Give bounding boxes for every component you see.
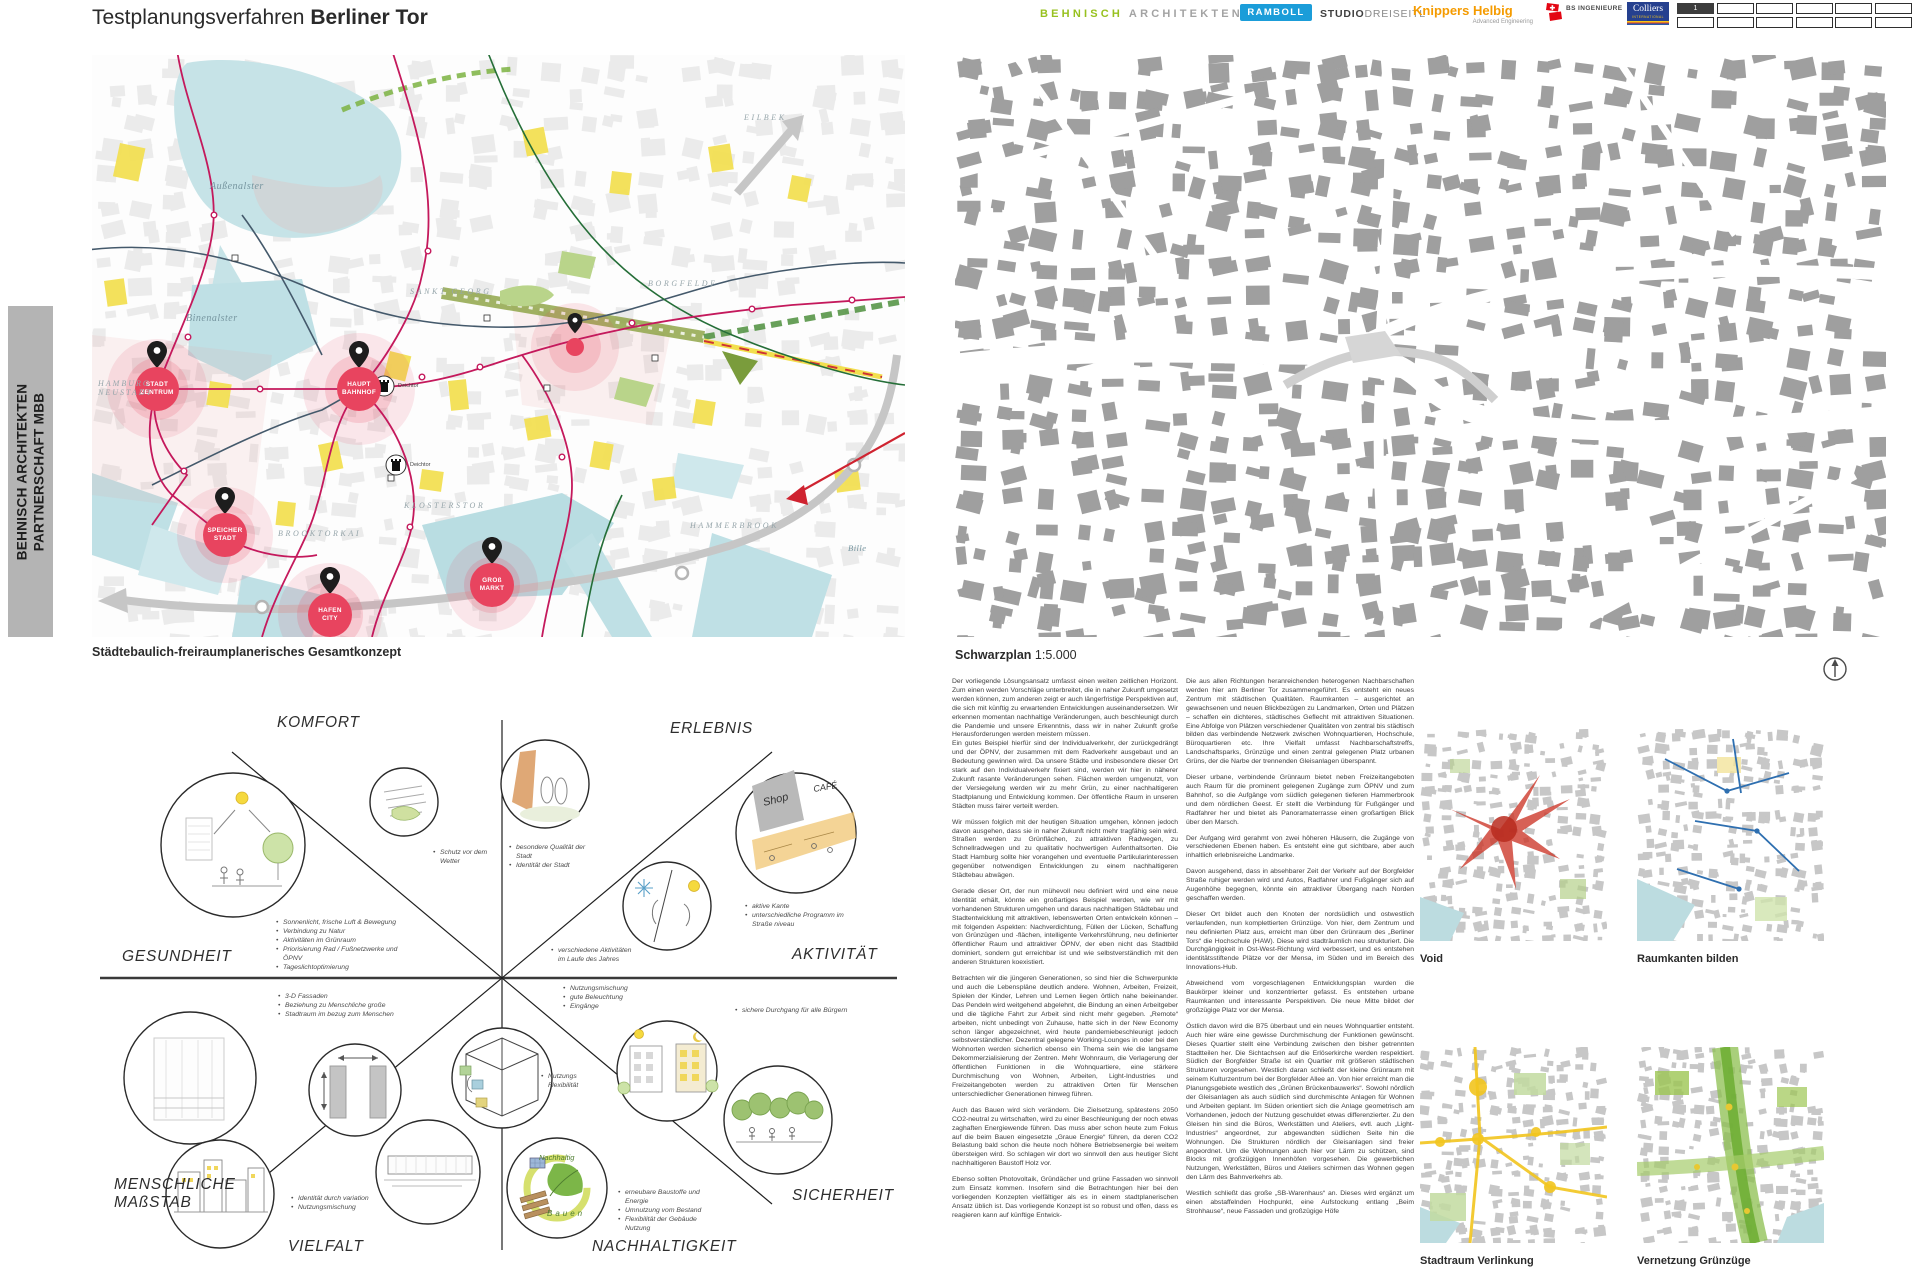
bullets-mischung: Nutzungsmischunggute BeleuchtungEingänge bbox=[562, 984, 647, 1011]
label-borgfelde: BORGFELDE bbox=[648, 279, 718, 288]
label-binnenalster: Binenalster bbox=[186, 313, 238, 324]
minimap-stadtraum: Stadtraum Verlinkung bbox=[1420, 1047, 1607, 1267]
map-pin-icon bbox=[568, 313, 583, 333]
firm-side-band: BEHNISCH ARCHITEKTEN PARTNERSCHAFT MBB bbox=[8, 306, 53, 637]
sheet-index-cell bbox=[1717, 3, 1754, 14]
label-eilbek: EILBEK bbox=[744, 113, 787, 122]
sector-label-menschliche-massstab: MENSCHLICHE MAßSTAB bbox=[114, 1176, 236, 1212]
sheet-index-grid: 1 bbox=[1677, 3, 1912, 28]
essay-paragraph: Auch das Bauen wird sich verändern. Die … bbox=[952, 1107, 1178, 1169]
sector-label-sicherheit: SICHERHEIT bbox=[792, 1187, 894, 1205]
behnisch-logo-green: BEHNISCH bbox=[1040, 8, 1123, 20]
minimap-raumkanten-caption: Raumkanten bilden bbox=[1637, 953, 1824, 965]
minimap-gruenzuege: Vernetzung Grünzüge bbox=[1637, 1047, 1824, 1267]
schwarzplan-caption-scale: 1:5.000 bbox=[1035, 648, 1077, 662]
minimap-gruenzuege-graphic bbox=[1637, 1047, 1824, 1248]
sector-label-nachhaltigkeit: NACHHALTIGKEIT bbox=[592, 1238, 736, 1256]
essay-column-1: Der vorliegende Lösungsansatz umfasst ei… bbox=[952, 678, 1178, 1279]
colliers-logo-subtext: INTERNATIONAL bbox=[1627, 15, 1669, 19]
concept-map: STADT ZENTRUM HAUPT BAHNHOF SPEICHER STA… bbox=[92, 55, 905, 637]
map-pin-icon bbox=[482, 537, 502, 564]
sheet-index-cell bbox=[1875, 17, 1912, 28]
minimap-stadtraum-graphic bbox=[1420, 1047, 1607, 1248]
essay-paragraph: Westlich schließt das große „SB-Warenhau… bbox=[1186, 1190, 1414, 1217]
north-arrow-icon bbox=[1822, 656, 1848, 687]
sheet-index-cell bbox=[1677, 17, 1714, 28]
sheet-index-cell bbox=[1835, 17, 1872, 28]
colliers-logo-stripes bbox=[1627, 21, 1669, 25]
minimap-void-graphic bbox=[1420, 729, 1607, 946]
studio-dreiseitl-logo: STUDIODREISEITL bbox=[1320, 8, 1426, 20]
bullets-wetter: Schutz vor dem Wetter bbox=[432, 848, 494, 866]
sheet-index-cell bbox=[1756, 17, 1793, 28]
knippers-logo-subtext: Advanced Engineering bbox=[1413, 19, 1533, 25]
sheet-index-cell-active: 1 bbox=[1677, 3, 1714, 14]
schwarzplan-map bbox=[955, 55, 1886, 637]
ramboll-logo-text: RAMBOLL bbox=[1247, 7, 1304, 18]
label-hamburg-neustadt: HAMBURG NEUSTADT bbox=[98, 379, 153, 397]
sketch-bauen-label: Bauen bbox=[547, 1209, 585, 1218]
presentation-board: { "header": { "title_prefix": "Testplanu… bbox=[0, 0, 1920, 1280]
essay-paragraph: Ebenso sollten Photovoltaik, Gründächer … bbox=[952, 1176, 1178, 1221]
essay-paragraph: Betrachten wir die jüngeren Generationen… bbox=[952, 975, 1178, 1100]
sector-label-aktivitaet: AKTIVITÄT bbox=[792, 946, 878, 964]
bullets-fassaden: 3-D FassadenBeziehung zu Menschliche gro… bbox=[277, 992, 402, 1019]
map-marker-label: HAFEN CITY bbox=[308, 593, 352, 637]
schwarzplan-graphic bbox=[955, 55, 1886, 637]
sheet-index-cell bbox=[1835, 3, 1872, 14]
minimap-stadtraum-caption: Stadtraum Verlinkung bbox=[1420, 1255, 1607, 1267]
label-bille: Bille bbox=[848, 543, 867, 553]
sheet-index-cell bbox=[1756, 3, 1793, 14]
essay-paragraph: Der vorliegende Lösungsansatz umfasst ei… bbox=[952, 678, 1178, 812]
label-brooktorkai: BROOKTORKAI bbox=[278, 529, 361, 538]
essay-paragraph: Der Aufgang wird gerahmt von zwei höhere… bbox=[1186, 835, 1414, 862]
sector-label-erlebnis: ERLEBNIS bbox=[670, 720, 753, 738]
studio-logo-bold: STUDIO bbox=[1320, 8, 1364, 20]
colliers-logo-text: Colliers bbox=[1627, 4, 1669, 15]
bullets-qualitaet: besondere Qualität der StadtIdentität de… bbox=[508, 843, 588, 870]
sector-label-vielfalt: VIELFALT bbox=[288, 1238, 364, 1256]
title-prefix: Testplanungsverfahren bbox=[92, 6, 304, 29]
essay-paragraph: Dieser urbane, verbindende Grünraum biet… bbox=[1186, 774, 1414, 827]
map-marker-label: SPEICHER STADT bbox=[203, 513, 247, 557]
page-title: Testplanungsverfahren Berliner Tor bbox=[92, 6, 428, 30]
essay-paragraph: Östlich davon wird die B75 überbaut und … bbox=[1186, 1023, 1414, 1183]
bullets-kante: aktive Kanteunterschiedliche Programm im… bbox=[744, 902, 844, 929]
firm-side-band-text: BEHNISCH ARCHITEKTEN PARTNERSCHAFT MBB bbox=[14, 306, 47, 637]
sheet-index-cell bbox=[1796, 3, 1833, 14]
knippers-helbig-logo: Knippers Helbig Advanced Engineering bbox=[1413, 3, 1533, 25]
sector-label-gesundheit: GESUNDHEIT bbox=[122, 948, 232, 966]
schwarzplan-caption-bold: Schwarzplan bbox=[955, 648, 1031, 662]
map-pin-icon bbox=[215, 487, 235, 514]
sector-label-komfort: KOMFORT bbox=[277, 714, 360, 732]
essay-paragraph: Wir müssen folglich mit der heutigen Sit… bbox=[952, 819, 1178, 881]
minimap-gruenzuege-caption: Vernetzung Grünzüge bbox=[1637, 1255, 1824, 1267]
bs-logo-text: BS INGENIEURE bbox=[1566, 5, 1623, 12]
essay-column-2: Die aus allen Richtungen heranreichenden… bbox=[1186, 678, 1414, 1279]
essay-paragraph: Abweichend vom vorgeschlagenen Entwicklu… bbox=[1186, 980, 1414, 1016]
label-deichtor-2: Deichtor bbox=[410, 462, 430, 468]
label-sankt-georg: SANKT GEORG bbox=[410, 287, 492, 296]
label-aussenalster: Außenalster bbox=[210, 181, 264, 192]
values-diagram: Shop CAFÉ bbox=[92, 690, 905, 1280]
ramboll-logo: RAMBOLL bbox=[1240, 4, 1312, 21]
map-pin-icon bbox=[349, 341, 369, 368]
essay-paragraph: Die aus allen Richtungen heranreichenden… bbox=[1186, 678, 1414, 767]
label-hammerbrook: HAMMERBROOK bbox=[690, 521, 779, 530]
behnisch-architekten-logo: BEHNISCH ARCHITEKTEN bbox=[1040, 8, 1243, 20]
essay-paragraph: Dieser Ort bildet auch den Knoten der no… bbox=[1186, 911, 1414, 973]
map-marker-dot bbox=[566, 338, 584, 356]
label-deichtor-1: Deichtor bbox=[398, 383, 418, 389]
map-marker-label: GROß MARKT bbox=[470, 563, 514, 607]
title-project: Berliner Tor bbox=[310, 6, 427, 29]
behnisch-logo-gray: ARCHITEKTEN bbox=[1129, 8, 1243, 20]
sketch-nachhaltig-label: Nachhaltig bbox=[539, 1153, 575, 1162]
bs-ingenieure-logo: BS INGENIEURE bbox=[1546, 2, 1623, 22]
knippers-logo-text: Knippers Helbig bbox=[1413, 3, 1533, 18]
bullets-vielfalt: Identität durch variationNutzungsmischun… bbox=[290, 1194, 382, 1212]
sheet-index-cell bbox=[1796, 17, 1833, 28]
schwarzplan-caption: Schwarzplan 1:5.000 bbox=[955, 648, 1077, 662]
minimap-raumkanten-graphic bbox=[1637, 729, 1824, 946]
sheet-index-cell bbox=[1875, 3, 1912, 14]
map-pin-icon bbox=[320, 567, 340, 594]
bullets-nachhaltigkeit: erneubare Baustoffe und EnergieUmnutzung… bbox=[617, 1188, 705, 1233]
bullets-aktivitaeten: verschiedene Aktivitäten im Laufe des Ja… bbox=[550, 946, 632, 964]
bullets-flexibilitaet: Nutzungs Flexibilität bbox=[540, 1072, 588, 1090]
sheet-index-cell bbox=[1717, 17, 1754, 28]
concept-map-caption: Städtebaulich-freiraumplanerisches Gesam… bbox=[92, 645, 401, 659]
minimap-void: Void bbox=[1420, 729, 1607, 965]
colliers-logo: Colliers INTERNATIONAL bbox=[1627, 2, 1669, 25]
label-klostertor: KLOSTERSTOR bbox=[404, 501, 485, 510]
minimap-void-caption: Void bbox=[1420, 953, 1607, 965]
bs-ingenieure-icon bbox=[1546, 2, 1562, 22]
essay-paragraph: Davon ausgehend, dass in absehbarer Zeit… bbox=[1186, 868, 1414, 904]
map-marker-label: HAUPT BAHNHOF bbox=[337, 367, 381, 411]
bullets-durchgang: sichere Durchgang für alle Bürgern bbox=[734, 1006, 869, 1015]
bullets-gesundheit: Sonnenlicht, frische Luft & BewegungVerb… bbox=[275, 918, 413, 972]
essay-paragraph: Gerade dieser Ort, der nun mühevoll neu … bbox=[952, 888, 1178, 968]
map-pin-icon bbox=[147, 341, 167, 368]
minimap-raumkanten: Raumkanten bilden bbox=[1637, 729, 1824, 965]
